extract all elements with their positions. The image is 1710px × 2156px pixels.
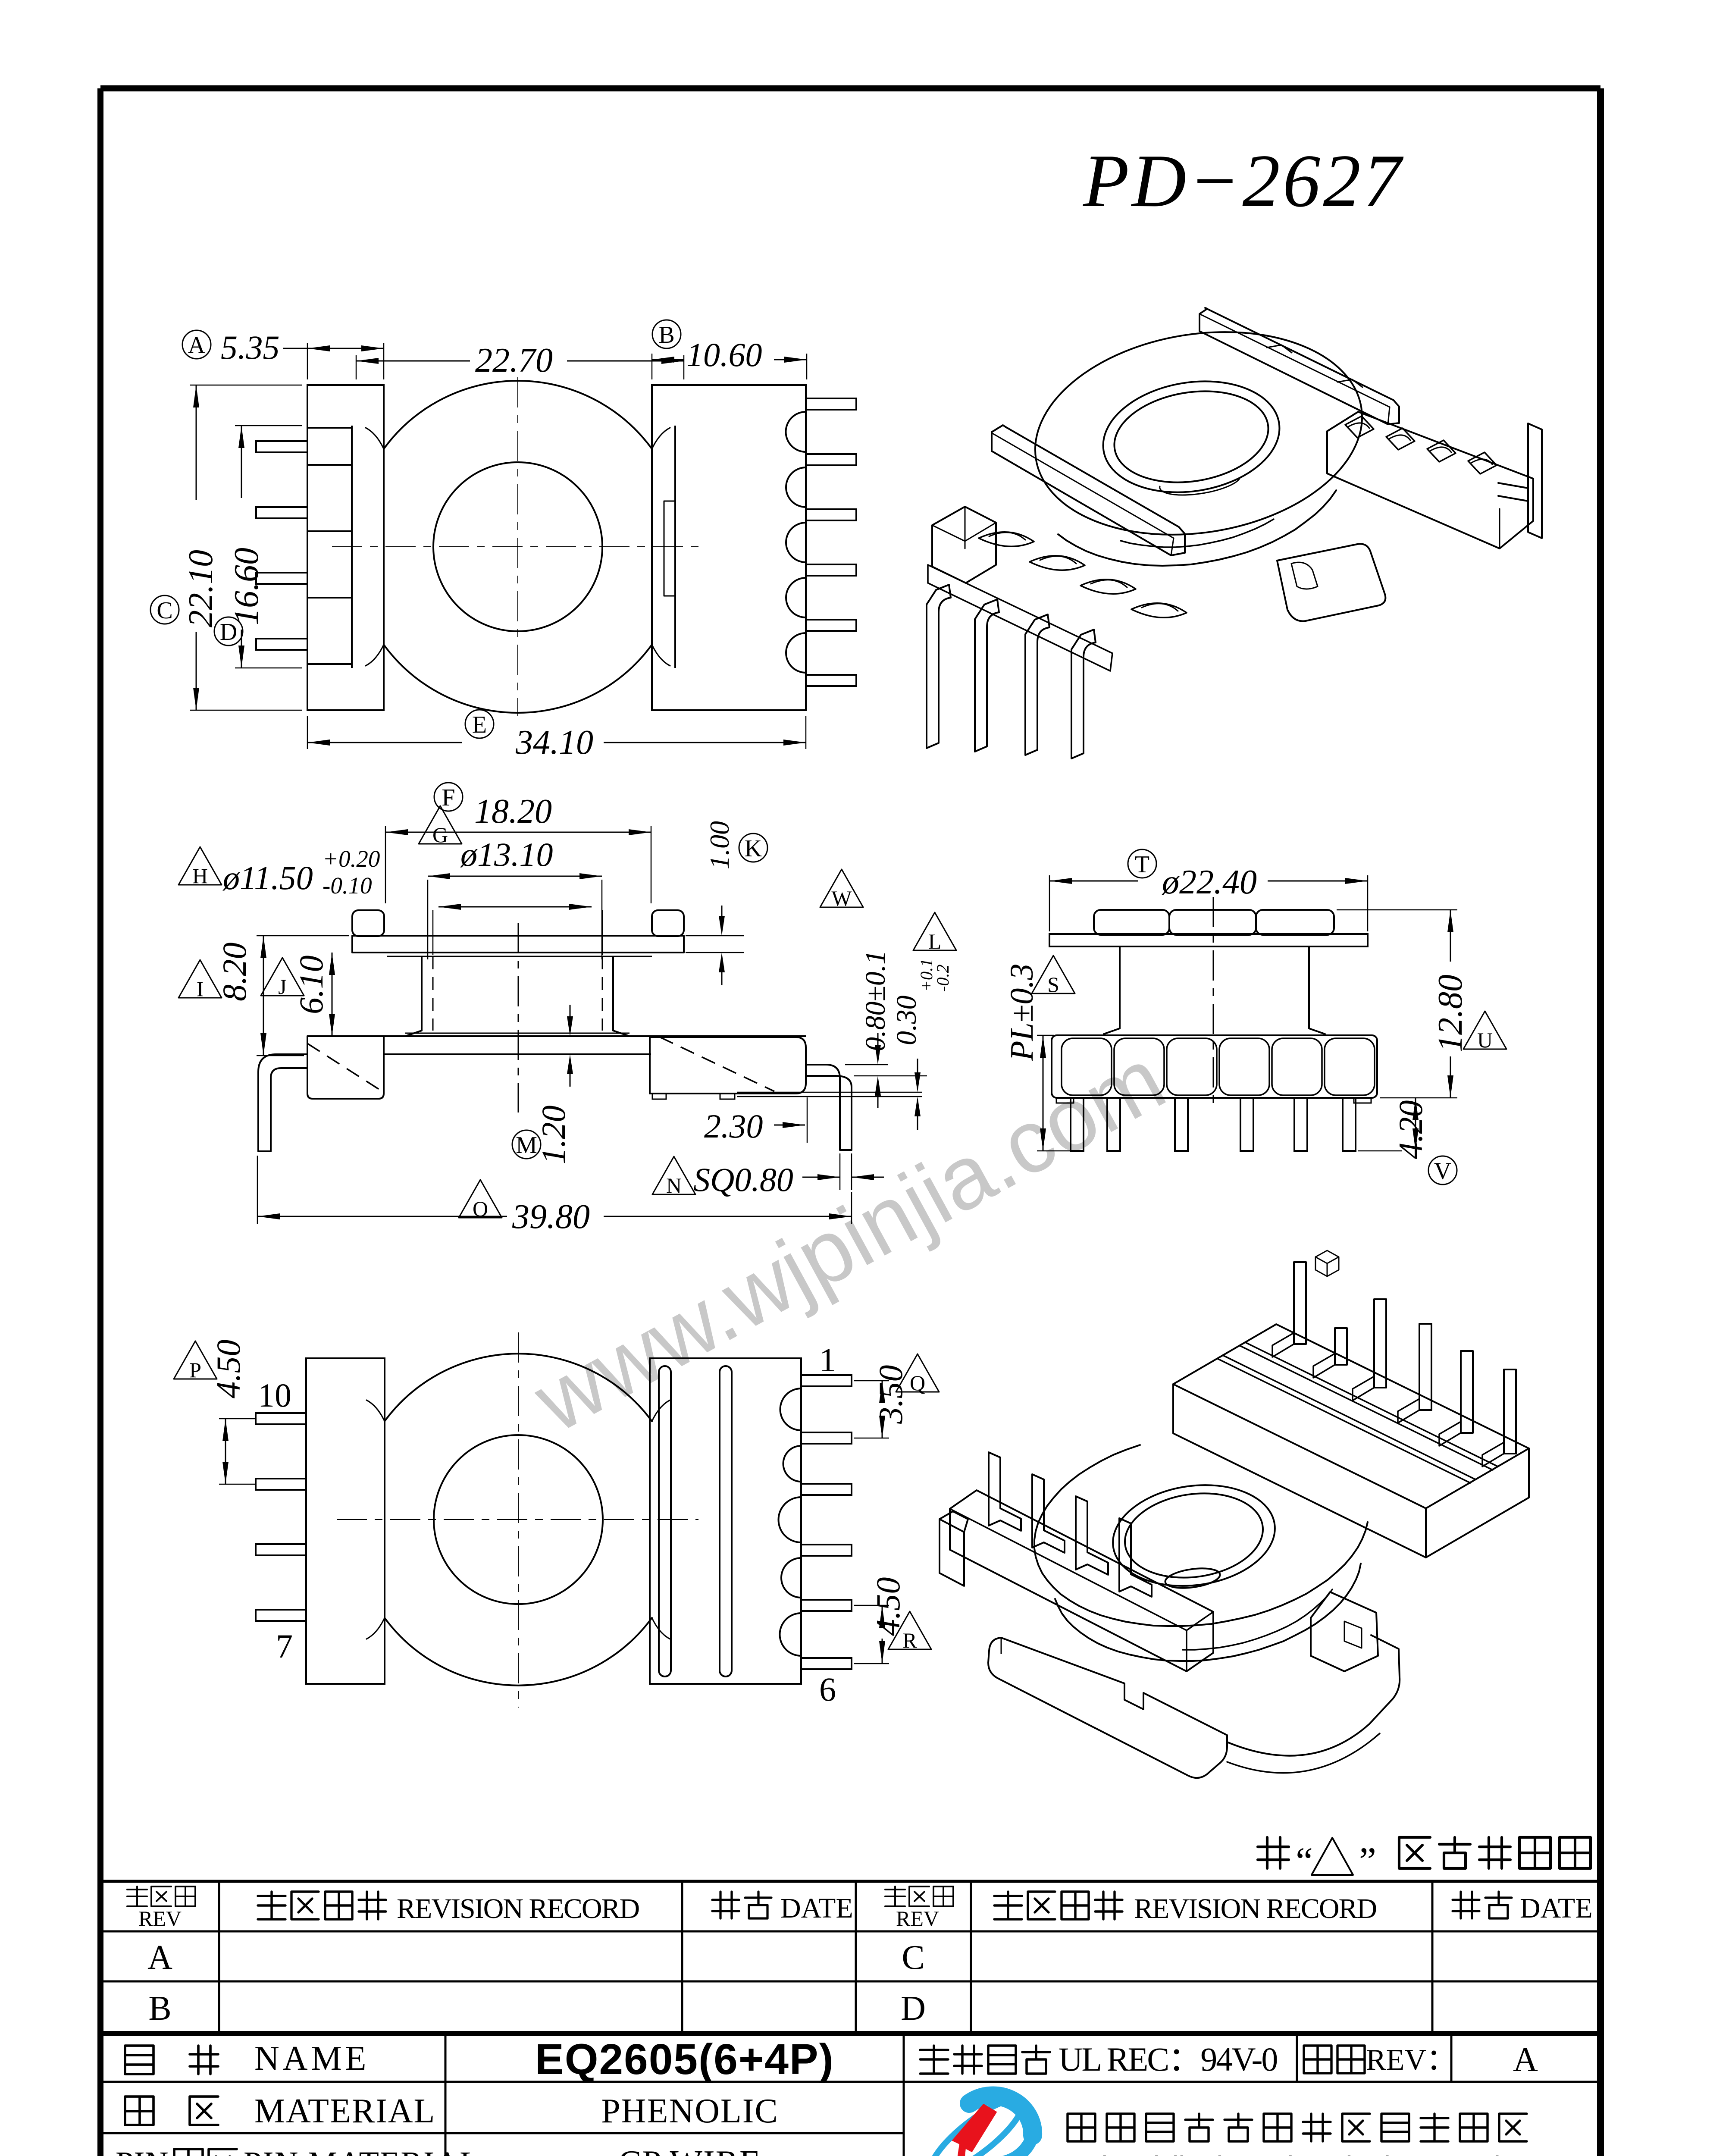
svg-text:-0.2: -0.2 <box>933 965 952 992</box>
svg-text:REV: REV <box>896 1906 939 1930</box>
svg-text:S: S <box>1047 972 1059 997</box>
svg-text:C: C <box>902 1939 924 1977</box>
svg-text:W: W <box>831 886 852 910</box>
svg-text:REV：: REV： <box>1366 2043 1456 2077</box>
svg-text:DATE: DATE <box>1520 1893 1593 1924</box>
svg-text:NAME: NAME <box>254 2040 370 2078</box>
svg-text:10.60: 10.60 <box>686 336 762 373</box>
svg-text:PL±0.3: PL±0.3 <box>1004 964 1040 1061</box>
svg-text:”: ” <box>1359 1840 1376 1883</box>
svg-text:1.00: 1.00 <box>704 821 735 869</box>
svg-text:16.60: 16.60 <box>228 548 266 625</box>
svg-text:ø11.50: ø11.50 <box>222 859 313 896</box>
svg-text:G: G <box>432 823 448 847</box>
svg-text:“: “ <box>1296 1840 1313 1883</box>
svg-text:O: O <box>473 1197 488 1221</box>
svg-text:7: 7 <box>276 1627 293 1665</box>
svg-text:I: I <box>197 977 204 1001</box>
svg-text:B: B <box>148 1990 171 2028</box>
svg-text:PHENOLIC: PHENOLIC <box>601 2092 779 2130</box>
svg-text:F: F <box>442 784 455 811</box>
svg-text:+0.20: +0.20 <box>323 846 380 872</box>
svg-text:18.20: 18.20 <box>474 793 552 830</box>
svg-text:FuzhouPinjia Electronic Techno: FuzhouPinjia Electronic TechnologyCo.,Lt… <box>1066 2152 1501 2156</box>
svg-text:PD−2627: PD−2627 <box>1083 139 1404 222</box>
svg-text:U: U <box>1477 1028 1493 1052</box>
svg-text:1: 1 <box>819 1341 836 1379</box>
svg-text:PIN: PIN <box>116 2145 168 2156</box>
svg-text:A: A <box>147 1939 172 1977</box>
svg-text:L: L <box>928 929 942 953</box>
svg-text:4.50: 4.50 <box>869 1577 907 1636</box>
svg-text:C: C <box>157 597 172 624</box>
svg-text:39.80: 39.80 <box>512 1198 590 1236</box>
svg-text:PIN MATERIAL: PIN MATERIAL <box>244 2145 481 2156</box>
svg-text:A: A <box>188 332 206 359</box>
svg-text:MATERIAL: MATERIAL <box>254 2092 435 2130</box>
svg-text:DATE: DATE <box>780 1893 853 1924</box>
svg-text:SQ0.80: SQ0.80 <box>693 1161 793 1198</box>
svg-text:12.80: 12.80 <box>1431 975 1469 1052</box>
svg-text:ø22.40: ø22.40 <box>1161 863 1257 901</box>
svg-text:3.50: 3.50 <box>872 1365 909 1425</box>
svg-text:E: E <box>472 711 487 738</box>
svg-text:ø13.10: ø13.10 <box>460 836 553 873</box>
svg-text:P: P <box>189 1358 201 1382</box>
svg-text:REVISION RECORD: REVISION RECORD <box>397 1893 639 1924</box>
svg-text:B: B <box>658 322 674 348</box>
svg-text:H: H <box>192 864 208 888</box>
svg-text:8.20: 8.20 <box>216 943 253 1002</box>
svg-text:M: M <box>516 1132 537 1159</box>
svg-text:EQ2605(6+4P): EQ2605(6+4P) <box>535 2035 834 2084</box>
svg-text:4.20: 4.20 <box>1392 1100 1429 1159</box>
svg-text:A: A <box>1513 2041 1538 2079</box>
svg-text:0.80±0.1: 0.80±0.1 <box>860 950 891 1051</box>
svg-text:34.10: 34.10 <box>515 724 593 761</box>
svg-text:22.10: 22.10 <box>182 550 220 627</box>
svg-text:6: 6 <box>819 1670 836 1708</box>
svg-text:5.35: 5.35 <box>221 329 280 366</box>
svg-text:6.10: 6.10 <box>292 956 330 1015</box>
svg-text:V: V <box>1434 1158 1451 1185</box>
svg-text:2.30: 2.30 <box>704 1107 763 1145</box>
svg-text:4.50: 4.50 <box>210 1340 247 1399</box>
svg-text:1.20: 1.20 <box>535 1106 572 1165</box>
svg-text:REV: REV <box>138 1906 182 1930</box>
svg-text:K: K <box>745 835 762 862</box>
svg-text:Q: Q <box>910 1371 925 1395</box>
svg-text:J: J <box>278 975 286 999</box>
svg-text:T: T <box>1135 851 1149 878</box>
svg-text:UL REC：94V-0: UL REC：94V-0 <box>1059 2040 1277 2078</box>
svg-text:-0.10: -0.10 <box>323 872 372 899</box>
svg-text:22.70: 22.70 <box>475 342 553 379</box>
svg-text:D: D <box>901 1990 926 2028</box>
svg-text:10: 10 <box>258 1376 291 1414</box>
svg-text:REVISION RECORD: REVISION RECORD <box>1134 1893 1377 1924</box>
svg-text:N: N <box>666 1173 682 1197</box>
svg-text:CP WIRE: CP WIRE <box>618 2144 761 2156</box>
svg-text:0.30: 0.30 <box>891 996 922 1046</box>
